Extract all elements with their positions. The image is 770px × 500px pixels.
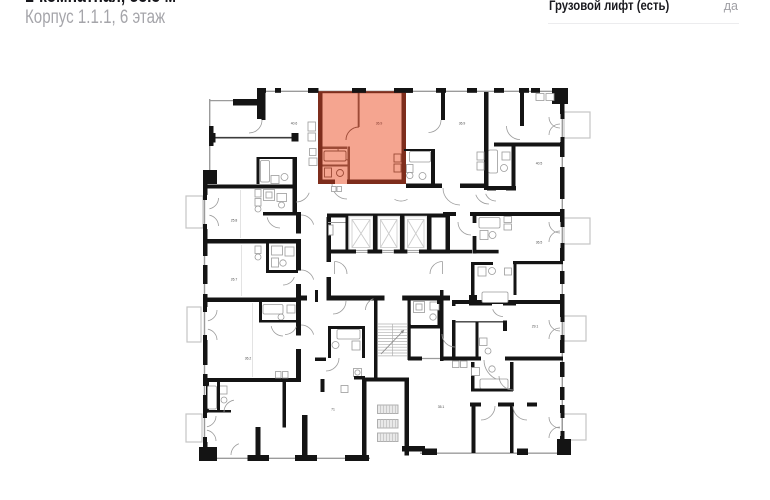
svg-text:40.5: 40.5 [536, 162, 543, 166]
svg-text:36.9: 36.9 [459, 122, 466, 126]
svg-text:35.1: 35.1 [438, 405, 445, 409]
svg-text:36.2: 36.2 [245, 357, 252, 361]
svg-text:29.1: 29.1 [532, 325, 539, 329]
svg-text:40.6: 40.6 [291, 122, 298, 126]
svg-text:25.8: 25.8 [231, 219, 238, 223]
svg-text:36.9: 36.9 [376, 122, 383, 126]
svg-text:36.5: 36.5 [536, 241, 543, 245]
svg-text:26.7: 26.7 [231, 278, 238, 282]
svg-text:71: 71 [331, 408, 335, 412]
